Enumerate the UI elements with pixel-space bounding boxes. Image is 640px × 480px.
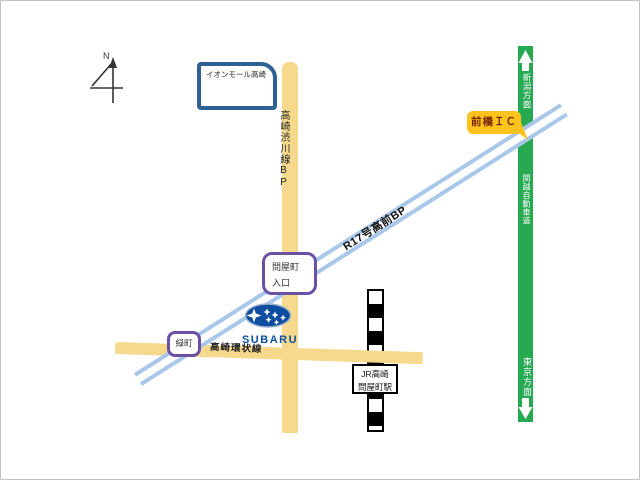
north-arrow-icon (90, 57, 123, 103)
access-map: 高崎渋川線BP R17号高前BP 高崎環状線 新潟方面 関越自動車道 東京方面 … (0, 0, 640, 480)
station-label-line1: JR高崎 (354, 368, 396, 381)
aeon-mall-box: イオンモール高崎 (197, 62, 277, 110)
expressway-direction-tokyo: 東京方面 (521, 357, 534, 397)
compass-north-label: N (103, 51, 110, 61)
subaru-dealer-marker: SUBARU (239, 302, 301, 346)
road-label-r17-bp: R17号高前BP (330, 195, 419, 258)
map-decorations (0, 0, 640, 480)
midoricho-box: 緑町 (167, 331, 201, 357)
tonyamachi-entrance-line2: 入口 (272, 275, 314, 291)
subaru-stars-icon (239, 302, 301, 329)
station-label-line2: 問屋町駅 (354, 381, 396, 394)
tonyamachi-entrance-box: 問屋町 入口 (262, 252, 317, 295)
station-box: JR高崎 問屋町駅 (352, 364, 398, 394)
expressway-direction-niigata: 新潟方面 (521, 73, 533, 109)
midoricho-label: 緑町 (175, 338, 192, 348)
maebashi-ic-label: 前橋ＩＣ (471, 116, 517, 128)
road-label-shibukawa-bp: 高崎渋川線BP (276, 110, 291, 189)
expressway-name-label: 関越自動車道 (521, 174, 532, 225)
subaru-wordmark: SUBARU (239, 334, 301, 346)
maebashi-ic-callout: 前橋ＩＣ (467, 111, 521, 134)
tonyamachi-entrance-line1: 問屋町 (272, 259, 314, 275)
aeon-mall-label: イオンモール高崎 (206, 70, 266, 79)
